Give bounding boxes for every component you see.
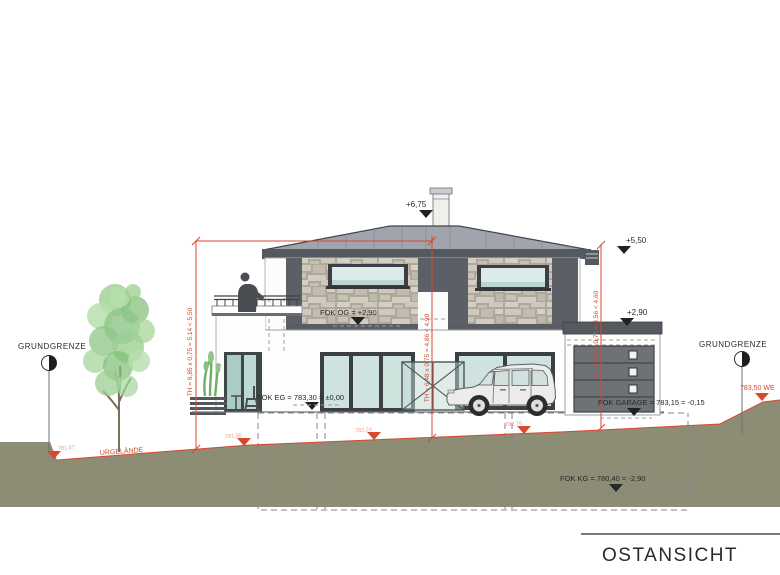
corner-band-right bbox=[552, 258, 578, 328]
eg-window-left bbox=[320, 352, 415, 412]
boundary-marker-icon bbox=[735, 352, 750, 367]
front-wheel bbox=[469, 395, 490, 416]
dim-text-middle: TH = 6,48 x 0,75 = 4,86 < 4,90 bbox=[424, 313, 431, 402]
path-level-label: 783,50 WE bbox=[740, 385, 775, 392]
recess-spandrel bbox=[418, 258, 448, 292]
garage-top-level-label: +2,90 bbox=[627, 308, 648, 317]
fok-og-label: FOK OG = +2,90 bbox=[320, 308, 377, 317]
corner-band-middle bbox=[448, 258, 468, 328]
window-sill bbox=[475, 288, 551, 291]
ground-level-left: 781,57 bbox=[58, 445, 75, 452]
tree-crown bbox=[83, 284, 155, 397]
door-window bbox=[629, 368, 637, 376]
ridge-marker-icon bbox=[419, 210, 433, 218]
chimney-cap bbox=[430, 188, 452, 194]
ground-spot-2: 782,24 bbox=[355, 427, 372, 434]
elevation-canvas: FOK KG = 780,40 = -2,90 URGELÄNDE 781,57… bbox=[0, 0, 780, 575]
ground-spot-3: 782,76 bbox=[505, 421, 522, 428]
door-handle bbox=[500, 389, 506, 391]
drawing-title: OSTANSICHT bbox=[602, 545, 738, 566]
ground-spot-1: 781,95 bbox=[225, 433, 242, 440]
boundary-marker-icon bbox=[42, 356, 57, 371]
garage-parapet bbox=[563, 322, 662, 334]
boundary-label-left: GRUNDGRENZE bbox=[18, 342, 86, 351]
upper-floor bbox=[265, 258, 580, 334]
tree bbox=[83, 284, 155, 452]
door-window bbox=[629, 351, 637, 359]
boundary-label-right: GRUNDGRENZE bbox=[699, 340, 767, 349]
eave-marker-icon bbox=[617, 246, 631, 254]
eave-level-label: +5,50 bbox=[626, 236, 647, 245]
property-boundary-left: GRUNDGRENZE bbox=[18, 342, 86, 451]
path-level-marker-icon bbox=[755, 393, 769, 401]
og-window-left bbox=[326, 264, 410, 289]
dim-text-left: TH = 6,85 x 0,75 = 5,14 < 5,50 bbox=[187, 307, 194, 396]
fok-kg-label: FOK KG = 780,40 = -2,90 bbox=[560, 474, 645, 483]
rear-wheel bbox=[527, 395, 548, 416]
corner-band-left bbox=[286, 258, 302, 328]
fok-eg-label: FOK EG = 783,30 = ±0,00 bbox=[257, 393, 344, 402]
elevation-drawing: FOK KG = 780,40 = -2,90 URGELÄNDE 781,57… bbox=[0, 0, 780, 575]
headlight bbox=[448, 390, 454, 393]
ridge-level-label: +6,75 bbox=[406, 200, 427, 209]
door-handle bbox=[520, 389, 526, 391]
fok-garage-label: FOK GARAGE = 783,15 = -0,15 bbox=[598, 398, 705, 407]
window-sill bbox=[326, 286, 410, 289]
og-window-right bbox=[475, 265, 551, 291]
balcony-slab-edge bbox=[212, 313, 302, 316]
dim-text-right: TH = 6,08 x 0,75 = 4,56 < 4,60 bbox=[593, 290, 600, 379]
door-window bbox=[629, 385, 637, 393]
title-block: OSTANSICHT bbox=[581, 534, 780, 566]
car-windows bbox=[479, 370, 548, 386]
roof-surface bbox=[263, 226, 590, 250]
